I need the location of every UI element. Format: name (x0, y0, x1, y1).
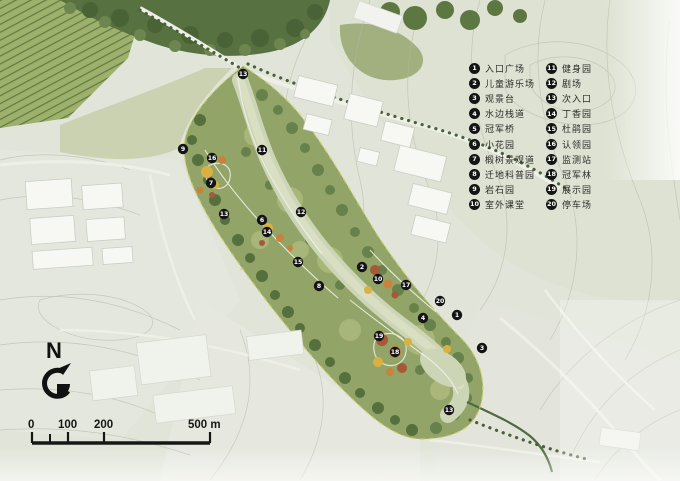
map-marker: 9 (178, 144, 188, 154)
legend-item-13: 13次入口 (546, 91, 592, 106)
svg-text:13: 13 (445, 407, 454, 414)
legend-number-badge: 3 (469, 93, 480, 104)
svg-text:12: 12 (297, 209, 306, 216)
map-marker: 12 (296, 207, 306, 217)
legend-item-label: 丁香园 (562, 107, 592, 120)
legend-item-label: 剧场 (562, 77, 582, 90)
legend-number-badge: 13 (546, 93, 557, 104)
map-marker: 6 (257, 215, 267, 225)
legend-item-17: 17监测站 (546, 152, 592, 167)
legend-number-badge: 15 (546, 123, 557, 134)
svg-text:13: 13 (239, 71, 248, 78)
legend-number-badge: 20 (546, 199, 557, 210)
legend-number-badge: 7 (469, 154, 480, 165)
legend-item-20: 20停车场 (546, 197, 592, 212)
map-marker: 19 (374, 331, 384, 341)
map-marker: 4 (418, 313, 428, 323)
legend-item-4: 4水边栈道 (469, 106, 535, 121)
legend-item-label: 椴树景观道 (485, 153, 535, 166)
legend-number-badge: 9 (469, 184, 480, 195)
legend-number-badge: 5 (469, 123, 480, 134)
svg-text:16: 16 (208, 155, 217, 162)
legend-number-badge: 6 (469, 139, 480, 150)
legend-item-label: 儿童游乐场 (485, 77, 535, 90)
legend-item-5: 5冠军桥 (469, 121, 535, 136)
svg-text:19: 19 (375, 333, 384, 340)
map-marker: 20 (435, 296, 445, 306)
legend-item-15: 15杜鹃园 (546, 121, 592, 136)
legend-number-badge: 19 (546, 184, 557, 195)
legend-number-badge: 1 (469, 63, 480, 74)
legend-item-label: 岩石园 (485, 183, 515, 196)
legend-item-label: 冠军桥 (485, 122, 515, 135)
legend-number-badge: 17 (546, 154, 557, 165)
legend-item-9: 9岩石园 (469, 182, 535, 197)
legend-number-badge: 4 (469, 108, 480, 119)
map-marker: 15 (293, 257, 303, 267)
svg-text:7: 7 (209, 180, 213, 187)
legend-item-12: 12剧场 (546, 76, 592, 91)
map-marker: 13 (444, 405, 454, 415)
legend-number-badge: 18 (546, 169, 557, 180)
map-marker: 3 (477, 343, 487, 353)
svg-text:10: 10 (374, 276, 383, 283)
legend-column-2: 11健身园 12剧场 13次入口 14丁香园 15杜鹃园 16认领园 17监测站… (546, 61, 592, 212)
legend-item-label: 次入口 (562, 92, 592, 105)
legend-item-label: 认领园 (562, 138, 592, 151)
map-marker: 13 (219, 209, 229, 219)
map-marker: 1 (452, 310, 462, 320)
legend-item-label: 小花园 (485, 138, 515, 151)
legend-item-label: 停车场 (562, 198, 592, 211)
legend-number-badge: 2 (469, 78, 480, 89)
legend-item-label: 冠军林 (562, 168, 592, 181)
svg-text:2: 2 (360, 264, 364, 271)
legend-item-8: 8迁地科普园 (469, 167, 535, 182)
legend-item-2: 2儿童游乐场 (469, 76, 535, 91)
scale-label-100: 100 (58, 419, 77, 431)
legend-item-label: 展示园 (562, 183, 592, 196)
map-marker: 13 (238, 69, 248, 79)
map-marker: 8 (314, 281, 324, 291)
map-marker: 16 (207, 153, 217, 163)
svg-text:14: 14 (263, 229, 272, 236)
legend-item-18: 18冠军林 (546, 167, 592, 182)
legend-item-10: 10室外课堂 (469, 197, 535, 212)
legend-item-label: 迁地科普园 (485, 168, 535, 181)
legend-item-label: 室外课堂 (485, 198, 525, 211)
map-marker: 10 (373, 274, 383, 284)
svg-text:8: 8 (317, 283, 321, 290)
legend-item-label: 监测站 (562, 153, 592, 166)
svg-text:11: 11 (258, 147, 267, 154)
svg-text:9: 9 (181, 146, 185, 153)
map-marker: 14 (262, 227, 272, 237)
legend-number-badge: 8 (469, 169, 480, 180)
svg-text:4: 4 (421, 315, 426, 322)
svg-text:1: 1 (455, 312, 459, 319)
map-marker: 11 (257, 145, 267, 155)
legend-item-label: 观景台 (485, 92, 515, 105)
legend-number-badge: 11 (546, 63, 557, 74)
legend-item-3: 3观景台 (469, 91, 535, 106)
svg-text:3: 3 (480, 345, 484, 352)
map-marker: 2 (357, 262, 367, 272)
legend-item-11: 11健身园 (546, 61, 592, 76)
legend-column-1: 1入口广场 2儿童游乐场 3观景台 4水边栈道 5冠军桥 6小花园 7椴树景观道… (469, 61, 535, 212)
legend-number-badge: 12 (546, 78, 557, 89)
map-marker: 7 (206, 178, 216, 188)
legend-item-19: 19展示园 (546, 182, 592, 197)
scale-label-0: 0 (28, 419, 34, 431)
legend-item-7: 7椴树景观道 (469, 152, 535, 167)
svg-text:6: 6 (260, 217, 264, 224)
legend-item-label: 水边栈道 (485, 107, 525, 120)
svg-text:17: 17 (402, 282, 411, 289)
legend-number-badge: 16 (546, 139, 557, 150)
svg-text:20: 20 (436, 298, 445, 305)
legend-item-label: 杜鹃园 (562, 122, 592, 135)
legend-item-1: 1入口广场 (469, 61, 535, 76)
legend-item-6: 6小花园 (469, 136, 535, 151)
map-marker: 17 (401, 280, 411, 290)
legend-item-label: 入口广场 (485, 62, 525, 75)
north-arrow: N (38, 340, 82, 404)
map-marker: 18 (390, 347, 400, 357)
svg-text:13: 13 (220, 211, 229, 218)
legend-item-label: 健身园 (562, 62, 592, 75)
svg-text:18: 18 (391, 349, 400, 356)
scale-label-200: 200 (94, 419, 113, 431)
legend-number-badge: 14 (546, 108, 557, 119)
legend-item-16: 16认领园 (546, 136, 592, 151)
legend-number-badge: 10 (469, 199, 480, 210)
scale-label-500: 500 m (188, 419, 221, 431)
north-label: N (46, 338, 62, 364)
svg-text:15: 15 (294, 259, 303, 266)
site-plan-screenshot: 1391611713126141521081720411931813 0 100… (0, 0, 680, 481)
legend-item-14: 14丁香园 (546, 106, 592, 121)
